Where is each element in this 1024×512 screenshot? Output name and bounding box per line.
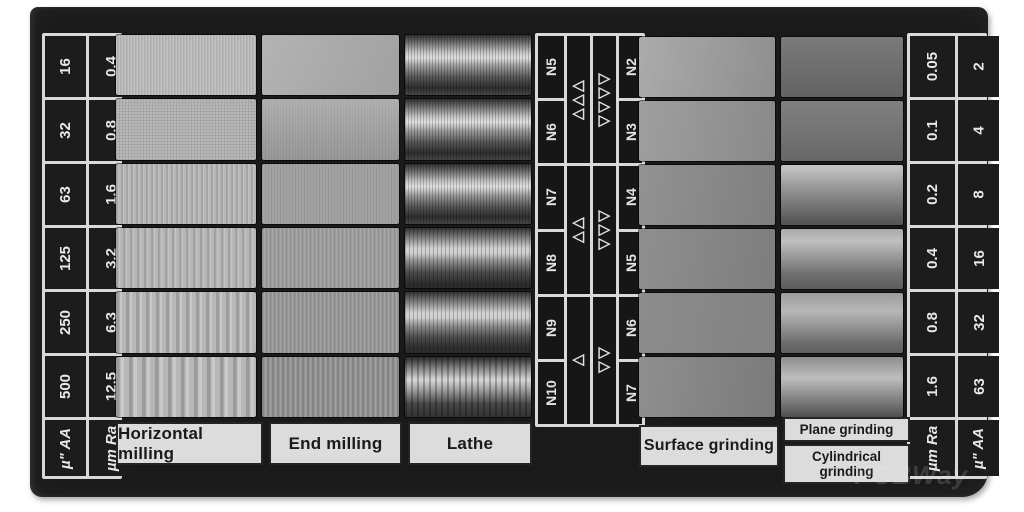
triangle-group-cell: ◁◁◁	[567, 36, 590, 163]
scale-cell: 32	[958, 292, 999, 353]
scale-column: 163263125250500µ" AA	[45, 36, 86, 476]
photo-surface-roughness-comparator: 163263125250500µ" AA0.40.81.63.26.312.5µ…	[0, 0, 1024, 512]
grade-cell: N8	[538, 232, 564, 294]
triangle-group-cell: ◁◁	[567, 166, 590, 293]
triangle-icon: ▷	[599, 360, 611, 374]
grade-cell-text: N8	[543, 254, 559, 272]
grade-cell: N5	[538, 36, 564, 98]
scale-cell: 16	[958, 228, 999, 289]
scale-cell-text: 500	[57, 374, 74, 399]
scale-cell-text: 0.05	[924, 52, 941, 81]
grade-cell-text: N9	[543, 319, 559, 337]
scale-cell: 125	[45, 228, 86, 289]
scale-cell: 1.6	[910, 356, 955, 417]
swatch-plane-cylindrical-grinding-row6	[781, 357, 903, 417]
scale-cell-text: 0.2	[924, 184, 941, 205]
grade-cell-text: N4	[622, 188, 638, 206]
scale-cell: 250	[45, 292, 86, 353]
triangle-group-cell: ◁	[567, 297, 590, 424]
swatch-surface-grinding-row1	[639, 37, 775, 97]
scale-cell: 63	[958, 356, 999, 417]
scale-cell: 0.4	[910, 228, 955, 289]
scale-cell-text: 2	[970, 62, 987, 70]
scale-column: 0.050.10.20.40.81.6µm Ra	[910, 36, 955, 476]
triangle-column-left: ◁◁◁◁◁◁	[567, 36, 590, 424]
swatch-end-milling-row5	[262, 292, 399, 352]
triangle-column-right: ▷▷▷▷▷▷▷▷▷	[593, 36, 616, 424]
swatch-horizontal-milling-row6	[116, 357, 256, 417]
swatch-plane-cylindrical-grinding-row3	[781, 165, 903, 225]
label-end-milling: End milling	[269, 422, 402, 465]
triangle-group-cell: ▷▷▷	[593, 166, 616, 293]
grade-cell-text: N10	[543, 380, 559, 406]
iso-grade-strip: N5N6N7N8N9N10◁◁◁◁◁◁▷▷▷▷▷▷▷▷▷N2N3N4N5N6N7	[535, 33, 645, 427]
grade-cell: N6	[538, 101, 564, 163]
swatch-lathe-row2	[405, 99, 531, 159]
scale-cell-text: 4	[970, 126, 987, 134]
label-surface-grinding: Surface grinding	[639, 425, 779, 467]
swatch-horizontal-milling-row1	[116, 35, 256, 95]
swatch-surface-grinding-row5	[639, 293, 775, 353]
swatch-plane-cylindrical-grinding-row1	[781, 37, 903, 97]
swatch-lathe-row4	[405, 228, 531, 288]
swatch-end-milling-row6	[262, 357, 399, 417]
grade-cell: N7	[538, 166, 564, 228]
finish-triangle-icon: ▷▷▷	[599, 209, 611, 251]
comparator-plate: 163263125250500µ" AA0.40.81.63.26.312.5µ…	[30, 7, 988, 497]
swatch-plane-cylindrical-grinding-row2	[781, 101, 903, 161]
swatch-lathe-row5	[405, 292, 531, 352]
swatch-lathe-row3	[405, 164, 531, 224]
swatch-end-milling-row1	[262, 35, 399, 95]
swatch-end-milling-row3	[262, 164, 399, 224]
scale-cell-text: 16	[57, 58, 74, 75]
grade-cell-text: N5	[543, 58, 559, 76]
label-lathe: Lathe	[408, 422, 532, 465]
swatch-horizontal-milling-row3	[116, 164, 256, 224]
scale-cell-text: 63	[57, 186, 74, 203]
scale-cell-text: 125	[57, 246, 74, 271]
scale-cell-text: 16	[970, 250, 987, 267]
scale-cell: 500	[45, 356, 86, 417]
scale-cell-text: 32	[57, 122, 74, 139]
grinding-sample-block	[639, 37, 907, 417]
scale-cell: 0.2	[910, 164, 955, 225]
swatch-end-milling-row2	[262, 99, 399, 159]
pcbway-watermark: PCBWay	[854, 460, 968, 491]
scale-unit-label: µ" AA	[45, 420, 86, 476]
grade-cell: N10	[538, 362, 564, 424]
swatch-surface-grinding-row6	[639, 357, 775, 417]
swatch-horizontal-milling-row4	[116, 228, 256, 288]
triangle-group-cell: ▷▷	[593, 297, 616, 424]
label-horizontal-milling: Horizontal milling	[116, 422, 263, 465]
scale-cell-text: 0.1	[924, 120, 941, 141]
scale-unit-label-text: µ" AA	[970, 427, 987, 468]
scale-cell-text: 0.4	[924, 248, 941, 269]
scale-cell-text: 0.8	[924, 312, 941, 333]
right-roughness-scale: 0.050.10.20.40.81.6µm Ra248163263µ" AA	[907, 33, 987, 479]
swatch-horizontal-milling-row5	[116, 292, 256, 352]
label-plane-grinding: Plane grinding	[783, 417, 910, 442]
milling-lathe-sample-block	[116, 35, 534, 417]
grade-cell-text: N6	[622, 319, 638, 337]
grade-cell-text: N2	[622, 58, 638, 76]
left-roughness-scale: 163263125250500µ" AA0.40.81.63.26.312.5µ…	[42, 33, 122, 479]
grade-cell: N9	[538, 297, 564, 359]
scale-cell: 2	[958, 36, 999, 97]
scale-cell-text: 250	[57, 310, 74, 335]
swatch-surface-grinding-row4	[639, 229, 775, 289]
scale-cell-text: 32	[970, 314, 987, 331]
triangle-group-cell: ▷▷▷▷	[593, 36, 616, 163]
swatch-horizontal-milling-row2	[116, 99, 256, 159]
grade-cell-text: N7	[622, 384, 638, 402]
scale-cell: 0.05	[910, 36, 955, 97]
triangle-icon: ▷	[599, 114, 611, 128]
triangle-icon: ◁	[572, 230, 584, 244]
scale-cell-text: 1.6	[924, 376, 941, 397]
swatch-surface-grinding-row3	[639, 165, 775, 225]
triangle-icon: ◁	[572, 107, 584, 121]
swatch-plane-cylindrical-grinding-row4	[781, 229, 903, 289]
swatch-lathe-row6	[405, 357, 531, 417]
grade-cell-text: N7	[543, 188, 559, 206]
scale-cell: 4	[958, 100, 999, 161]
scale-cell-text: 8	[970, 190, 987, 198]
grade-cell-text: N5	[622, 254, 638, 272]
scale-cell: 0.1	[910, 100, 955, 161]
scale-cell: 0.8	[910, 292, 955, 353]
grade-cell-text: N3	[622, 123, 638, 141]
grade-column-left: N5N6N7N8N9N10	[538, 36, 564, 424]
triangle-icon: ▷	[599, 237, 611, 251]
finish-triangle-icon: ▷▷	[599, 346, 611, 374]
triangle-icon: ◁	[572, 353, 584, 367]
scale-cell: 8	[958, 164, 999, 225]
scale-cell: 16	[45, 36, 86, 97]
swatch-surface-grinding-row2	[639, 101, 775, 161]
finish-triangle-icon: ◁◁◁	[572, 79, 584, 121]
scale-column: 248163263µ" AA	[958, 36, 999, 476]
swatch-lathe-row1	[405, 35, 531, 95]
scale-cell-text: 63	[970, 378, 987, 395]
scale-unit-label-text: µ" AA	[57, 427, 74, 468]
scale-cell: 32	[45, 100, 86, 161]
scale-cell: 63	[45, 164, 86, 225]
finish-triangle-icon: ▷▷▷▷	[599, 72, 611, 128]
finish-triangle-icon: ◁◁	[572, 216, 584, 244]
finish-triangle-icon: ◁	[572, 353, 584, 367]
swatch-end-milling-row4	[262, 228, 399, 288]
swatch-plane-cylindrical-grinding-row5	[781, 293, 903, 353]
grade-cell-text: N6	[543, 123, 559, 141]
